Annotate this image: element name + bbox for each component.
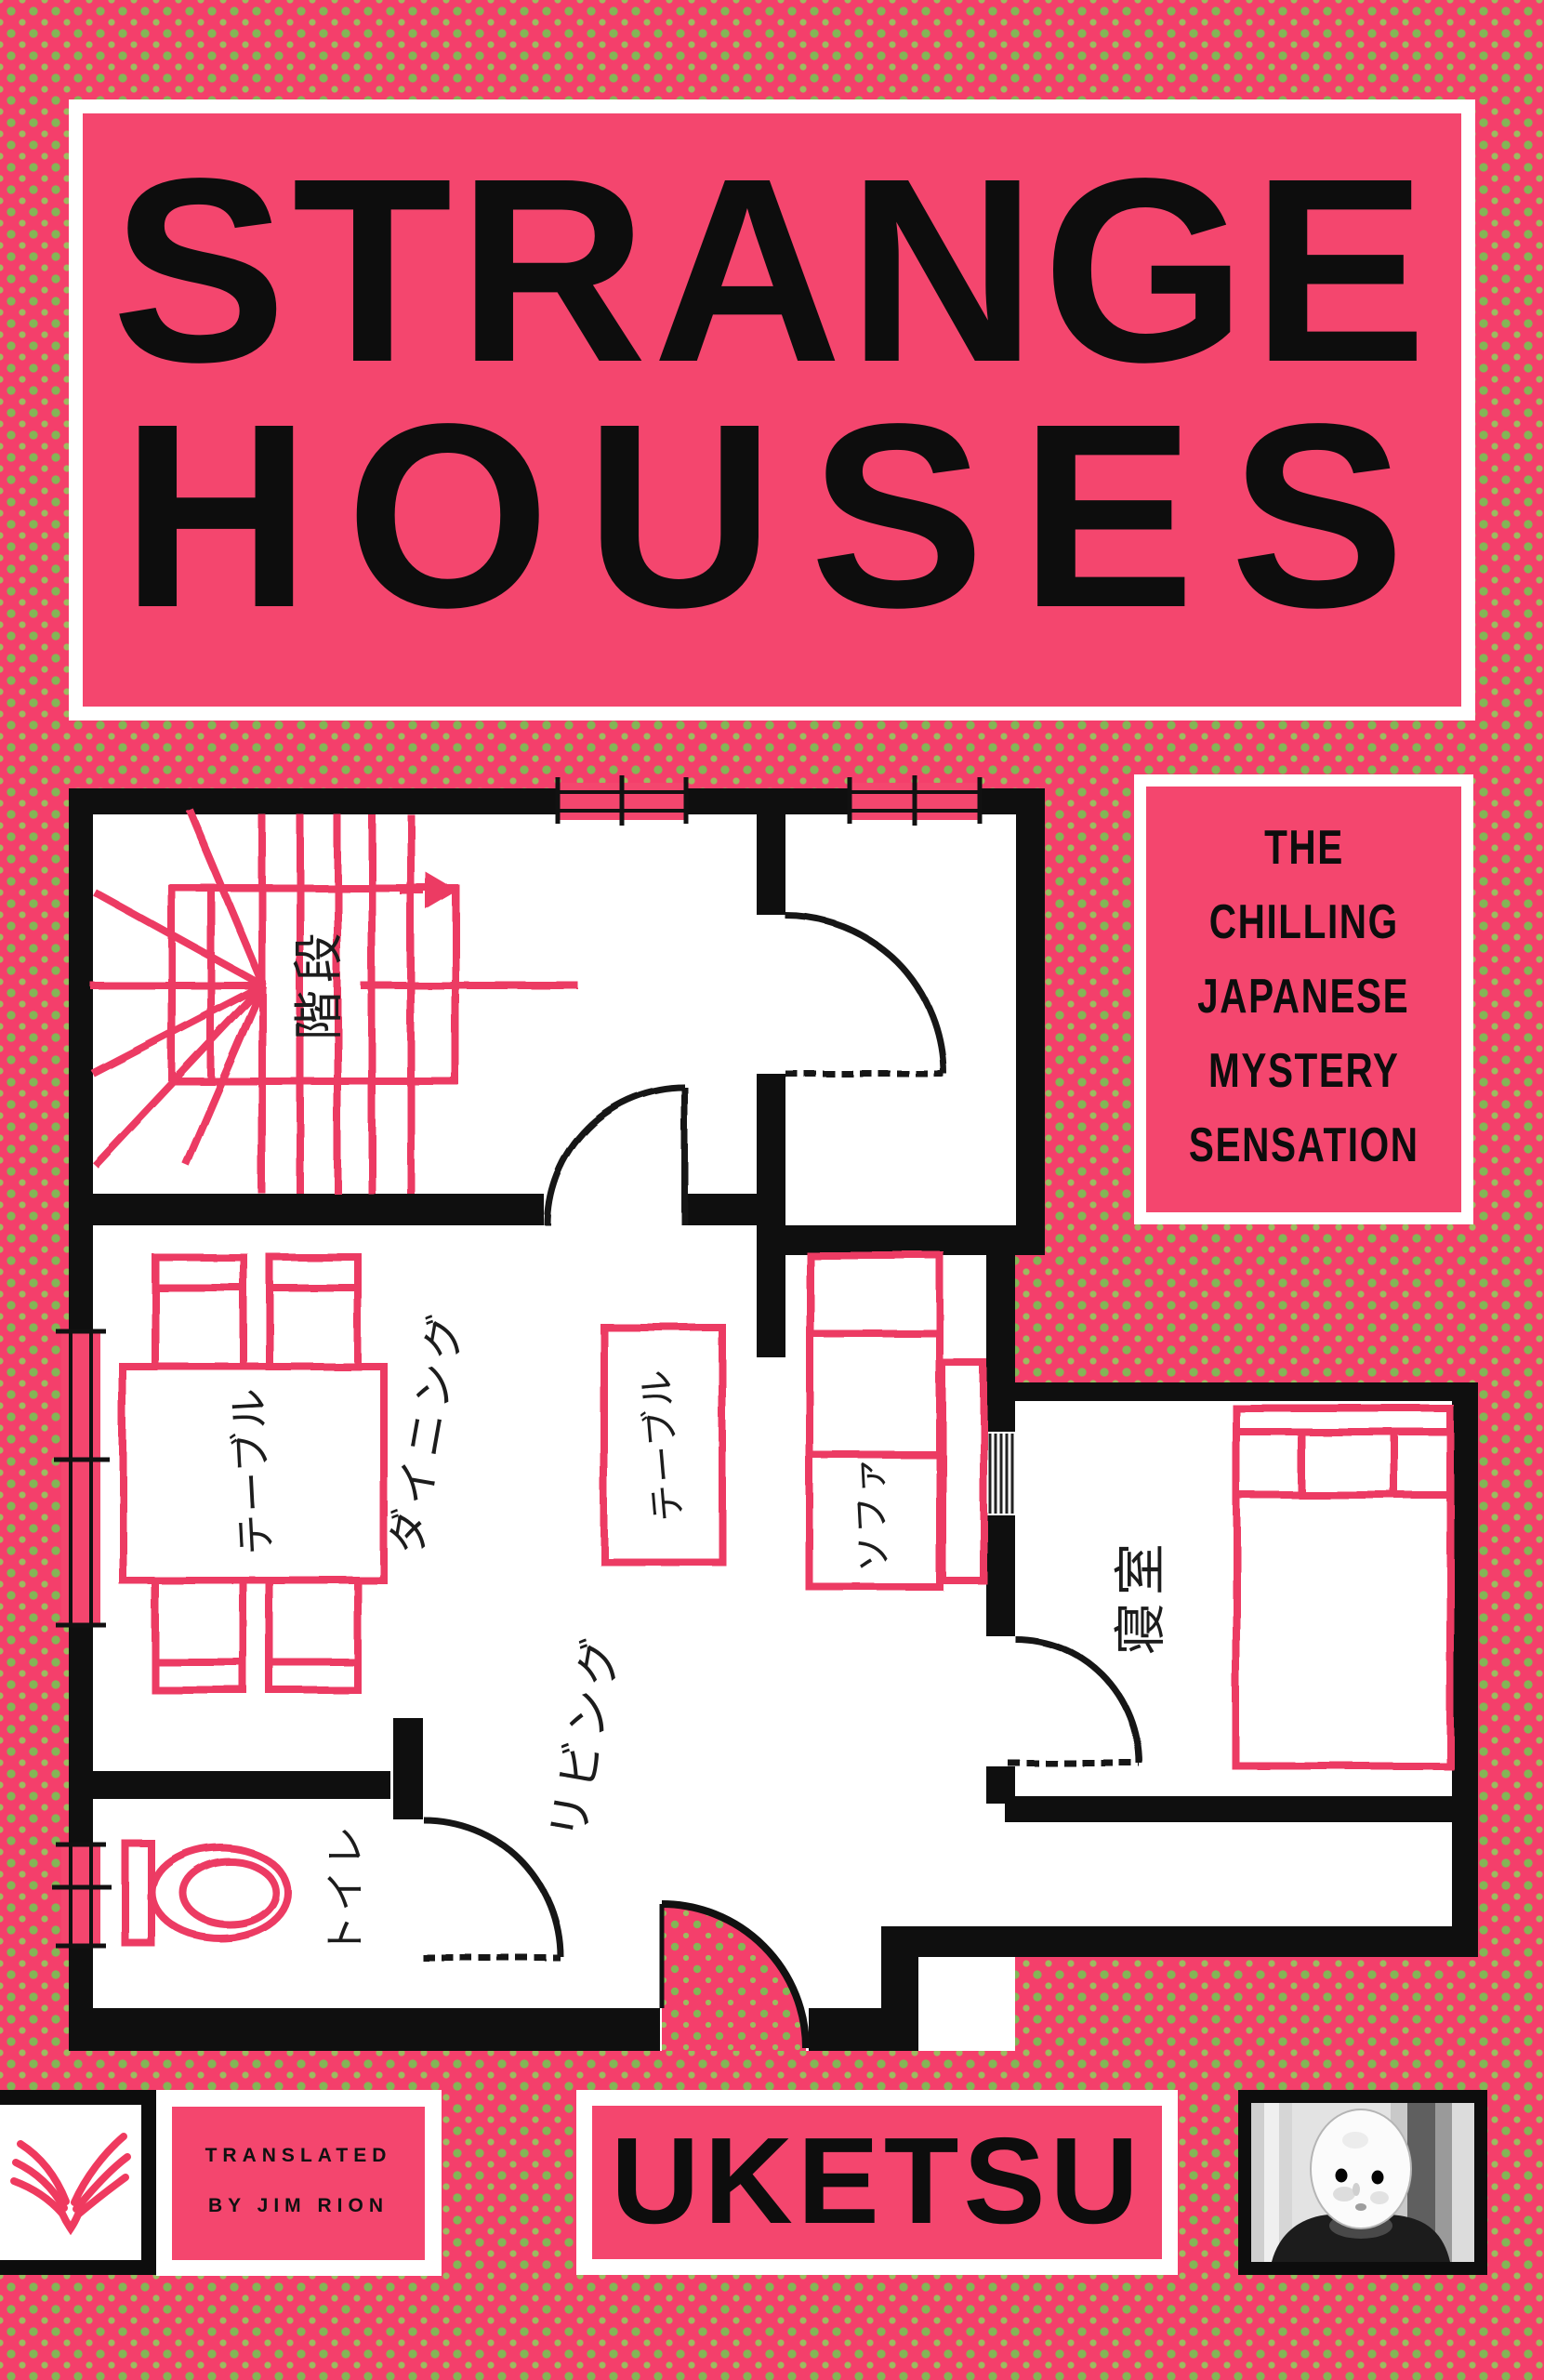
publisher-logo-box: [0, 2090, 156, 2275]
book-cover: { "page": {"width": 1661, "height": 2560…: [0, 0, 1544, 2380]
label-stairs: 階段: [290, 925, 349, 1040]
tagline-line: SENSATION: [1146, 1108, 1461, 1183]
author-name-box: UKETSU: [576, 2090, 1178, 2275]
tagline-text-3: JAPANESE: [1197, 959, 1409, 1034]
author-name: UKETSU: [611, 2120, 1143, 2242]
tagline-text-1: THE: [1264, 811, 1344, 885]
tagline-text-2: CHILLING: [1209, 885, 1399, 959]
label-dining-table: テーブル: [225, 1385, 281, 1556]
masked-figure-photo: [1251, 2103, 1474, 2262]
translator-line-2: BY JIM RION: [172, 2181, 425, 2231]
title-line-2: HOUSES: [83, 385, 1461, 647]
translator-lines: TRANSLATED BY JIM RION: [172, 2131, 425, 2231]
title-panel: STRANGE HOUSES: [83, 113, 1461, 707]
translator-line-1: TRANSLATED: [172, 2131, 425, 2181]
author-panel: UKETSU: [592, 2106, 1162, 2259]
tagline-line: JAPANESE: [1146, 959, 1461, 1034]
tagline-text-5: SENSATION: [1189, 1108, 1419, 1183]
title-line-1: STRANGE: [83, 139, 1461, 402]
translator-box: TRANSLATED BY JIM RION: [156, 2090, 442, 2276]
tagline-lines: THE CHILLING JAPANESE MYSTERY SENSATION: [1146, 811, 1461, 1183]
label-toilet: トイレ: [323, 1822, 370, 1956]
harpervia-wings-icon: [0, 2105, 141, 2260]
label-sofa: ソファ: [848, 1454, 897, 1573]
tagline-panel: THE CHILLING JAPANESE MYSTERY SENSATION: [1146, 787, 1461, 1212]
tagline-line: THE: [1146, 811, 1461, 885]
author-photo-box: [1238, 2090, 1487, 2275]
tagline-text-4: MYSTERY: [1208, 1034, 1399, 1108]
tagline-box: THE CHILLING JAPANESE MYSTERY SENSATION: [1134, 774, 1473, 1224]
label-bedroom: 寝室: [1112, 1536, 1172, 1655]
tagline-line: CHILLING: [1146, 885, 1461, 959]
tagline-line: MYSTERY: [1146, 1034, 1461, 1108]
title-block: STRANGE HOUSES: [69, 99, 1475, 721]
translator-panel: TRANSLATED BY JIM RION: [172, 2107, 425, 2260]
